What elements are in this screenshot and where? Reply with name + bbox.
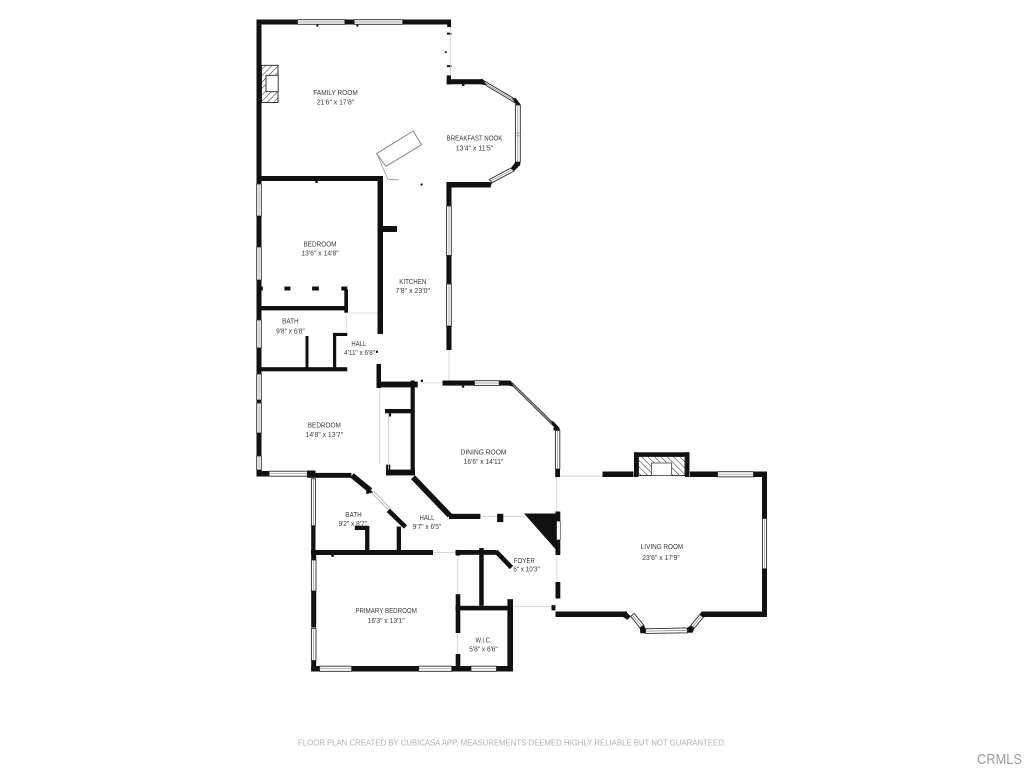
svg-text:BEDROOM: BEDROOM xyxy=(304,240,337,249)
svg-text:W.I.C.: W.I.C. xyxy=(476,635,492,644)
svg-text:FAMILY ROOM: FAMILY ROOM xyxy=(313,88,358,97)
svg-text:16'3" x 13'1": 16'3" x 13'1" xyxy=(368,616,405,625)
svg-text:13'6" x 14'8": 13'6" x 14'8" xyxy=(301,249,339,258)
svg-text:BATH: BATH xyxy=(282,317,299,326)
svg-text:9'2" x 8'7": 9'2" x 8'7" xyxy=(338,519,367,528)
svg-text:FOYER: FOYER xyxy=(514,556,535,565)
svg-text:9'7" x 6'5": 9'7" x 6'5" xyxy=(413,522,442,531)
svg-text:7'8" x 23'0": 7'8" x 23'0" xyxy=(396,286,431,295)
svg-text:13'4" x 11'5": 13'4" x 11'5" xyxy=(456,144,494,153)
svg-text:CRMLS: CRMLS xyxy=(977,752,1022,768)
svg-text:KITCHEN: KITCHEN xyxy=(399,277,426,286)
svg-text:FLOOR PLAN CREATED BY CUBICASA: FLOOR PLAN CREATED BY CUBICASA APP. MEAS… xyxy=(298,738,726,748)
svg-text:16'6" x 14'11": 16'6" x 14'11" xyxy=(464,457,504,466)
svg-text:PRIMARY BEDROOM: PRIMARY BEDROOM xyxy=(355,606,417,615)
svg-text:DINING ROOM: DINING ROOM xyxy=(461,448,507,457)
svg-text:23'6" x 17'9": 23'6" x 17'9" xyxy=(642,553,680,562)
svg-text:6" x 10'3": 6" x 10'3" xyxy=(513,565,540,574)
svg-text:HALL: HALL xyxy=(420,513,435,522)
svg-text:9'8" x 6'8": 9'8" x 6'8" xyxy=(276,327,305,336)
svg-text:HALL: HALL xyxy=(351,339,366,348)
svg-text:BEDROOM: BEDROOM xyxy=(308,420,341,429)
svg-text:14'8" x 13'7": 14'8" x 13'7" xyxy=(306,430,344,439)
svg-text:5'8" x 6'6": 5'8" x 6'6" xyxy=(469,644,498,653)
svg-text:4'11" x 6'8": 4'11" x 6'8" xyxy=(344,348,375,357)
svg-text:BREAKFAST NOOK: BREAKFAST NOOK xyxy=(447,133,503,142)
svg-text:BATH: BATH xyxy=(345,510,362,519)
svg-text:LIVING ROOM: LIVING ROOM xyxy=(641,542,684,551)
svg-text:21'6" x 17'8": 21'6" x 17'8" xyxy=(317,97,355,106)
